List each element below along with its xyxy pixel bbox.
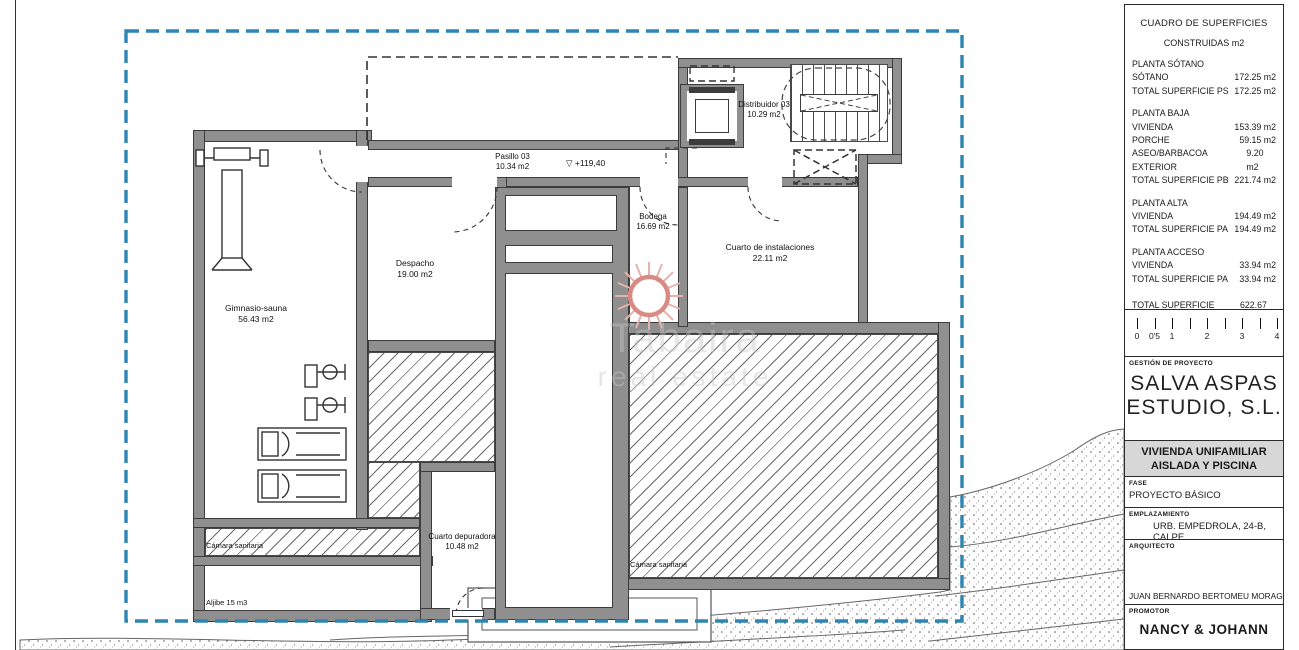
promotor-value: NANCY & JOHANN xyxy=(1125,622,1283,637)
arquitecto-value: JUAN BERNARDO BERTOMEU MORAGUES xyxy=(1129,591,1283,601)
table-row: ASEO/BARBACOA EXTERIOR9.20 m2 xyxy=(1132,147,1276,174)
room-label-pasillo: Pasillo 03 10.34 m2 xyxy=(470,152,555,172)
scale-label: 2 xyxy=(1205,331,1210,341)
scale-tick xyxy=(1137,318,1138,329)
overhang-dashed-line xyxy=(367,57,678,140)
scale-label: 3 xyxy=(1240,331,1245,341)
stair-void-cross-box xyxy=(794,150,856,184)
room-label-despacho: Despacho 19.00 m2 xyxy=(365,258,465,280)
title-block: CUADRO DE SUPERFICIES CONSTRUIDAS m2 PLA… xyxy=(1124,4,1284,650)
room-label-instalaciones: Cuarto de instalaciones 22.11 m2 xyxy=(700,242,840,264)
scale-tick xyxy=(1155,318,1156,329)
scale-label: 4 xyxy=(1275,331,1280,341)
promotor-label: PROMOTOR xyxy=(1129,608,1283,615)
room-label-gym: Gimnasio-sauna 56.43 m2 xyxy=(196,303,316,325)
project-management-section: GESTIÓN DE PROYECTO SALVA ASPAS ESTUDIO,… xyxy=(1125,357,1283,441)
sun-icon xyxy=(615,262,683,330)
room-label-depuradora: Cuarto depuradora 10.48 m2 xyxy=(424,532,500,552)
scale-tick xyxy=(1207,318,1208,329)
surfaces-subtitle: CONSTRUIDAS m2 xyxy=(1132,38,1276,48)
scale-tick xyxy=(1242,318,1243,329)
emplazamiento-value: URB. EMPEDROLA, 24-B, CALPE xyxy=(1153,521,1283,540)
company-name: SALVA ASPAS ESTUDIO, S.L. xyxy=(1125,372,1283,420)
table-row: VIVIENDA33.94 m2 xyxy=(1132,259,1276,272)
surfaces-title: CUADRO DE SUPERFICIES xyxy=(1132,18,1276,29)
scale-label: 0'5 xyxy=(1149,331,1160,341)
scale-tick xyxy=(1172,318,1173,329)
gestion-label: GESTIÓN DE PROYECTO xyxy=(1129,360,1283,367)
scale-bar-section: 0 0'5 1 2 3 4 xyxy=(1125,310,1283,357)
scale-tick xyxy=(1260,318,1261,329)
table-row: PLANTA ACCESO xyxy=(1132,246,1276,259)
project-title: VIVIENDA UNIFAMILIAR AISLADA Y PISCINA xyxy=(1125,445,1283,473)
annotation-aljibe: Aljibe 15 m3 xyxy=(206,598,247,607)
phase-section: FASE PROYECTO BÁSICO xyxy=(1125,477,1283,508)
architect-section: ARQUITECTO JUAN BERNARDO BERTOMEU MORAGU… xyxy=(1125,540,1283,605)
table-row-total: TOTAL SUPERFICIE CONSTR.622.67 m2 xyxy=(1132,299,1276,310)
scale-tick xyxy=(1225,318,1226,329)
table-row: TOTAL SUPERFICIE PA194.49 m2 xyxy=(1132,223,1276,236)
project-title-section: VIVIENDA UNIFAMILIAR AISLADA Y PISCINA xyxy=(1125,441,1283,477)
site-boundary xyxy=(126,31,962,621)
table-row: TOTAL SUPERFICIE PA33.94 m2 xyxy=(1132,273,1276,286)
fase-value: PROYECTO BÁSICO xyxy=(1129,490,1283,501)
elevator-overhead-dashed xyxy=(690,66,734,81)
fase-label: FASE xyxy=(1129,480,1283,487)
table-row: PLANTA BAJA xyxy=(1132,107,1276,120)
table-row: TOTAL SUPERFICIE PS172.25 m2 xyxy=(1132,85,1276,98)
drawing-sheet: Gimnasio-sauna 56.43 m2 Despacho 19.00 m… xyxy=(0,0,1299,650)
scale-tick xyxy=(1190,318,1191,329)
table-row: PLANTA SÓTANO xyxy=(1132,58,1276,71)
stair-stringer-cross xyxy=(801,95,877,111)
table-row: VIVIENDA153.39 m2 xyxy=(1132,121,1276,134)
surfaces-table: CUADRO DE SUPERFICIES CONSTRUIDAS m2 PLA… xyxy=(1125,5,1283,310)
scale-label: 0 xyxy=(1135,331,1140,341)
annotation-camara-sanitaria: Cámara sanitaria xyxy=(206,541,263,550)
scale-label: 1 xyxy=(1170,331,1175,341)
scale-tick xyxy=(1277,318,1278,329)
table-row: TOTAL SUPERFICIE PB221.74 m2 xyxy=(1132,174,1276,187)
arquitecto-label: ARQUITECTO xyxy=(1129,543,1283,550)
scale-bar: 0 0'5 1 2 3 4 xyxy=(1137,318,1277,348)
table-row: PORCHE59.15 m2 xyxy=(1132,134,1276,147)
level-mark: ▽ +119,40 xyxy=(566,158,605,169)
door-leaf xyxy=(452,610,484,617)
emplazamiento-label: EMPLAZAMIENTO xyxy=(1129,511,1283,518)
promoter-section: PROMOTOR NANCY & JOHANN xyxy=(1125,605,1283,650)
annotation-camara-sanitaria: Cámara sanitaria xyxy=(630,560,687,569)
table-row: VIVIENDA194.49 m2 xyxy=(1132,210,1276,223)
table-row: PLANTA ALTA xyxy=(1132,197,1276,210)
room-label-bodega: Bodega 16.69 m2 xyxy=(622,212,684,232)
room-label-distribuidor: Distribuidor 03 10.29 m2 xyxy=(718,100,810,120)
location-section: EMPLAZAMIENTO URB. EMPEDROLA, 24-B, CALP… xyxy=(1125,508,1283,540)
table-row: SÓTANO172.25 m2 xyxy=(1132,71,1276,84)
annotation-layer xyxy=(0,0,1299,650)
door-arcs xyxy=(320,148,782,615)
